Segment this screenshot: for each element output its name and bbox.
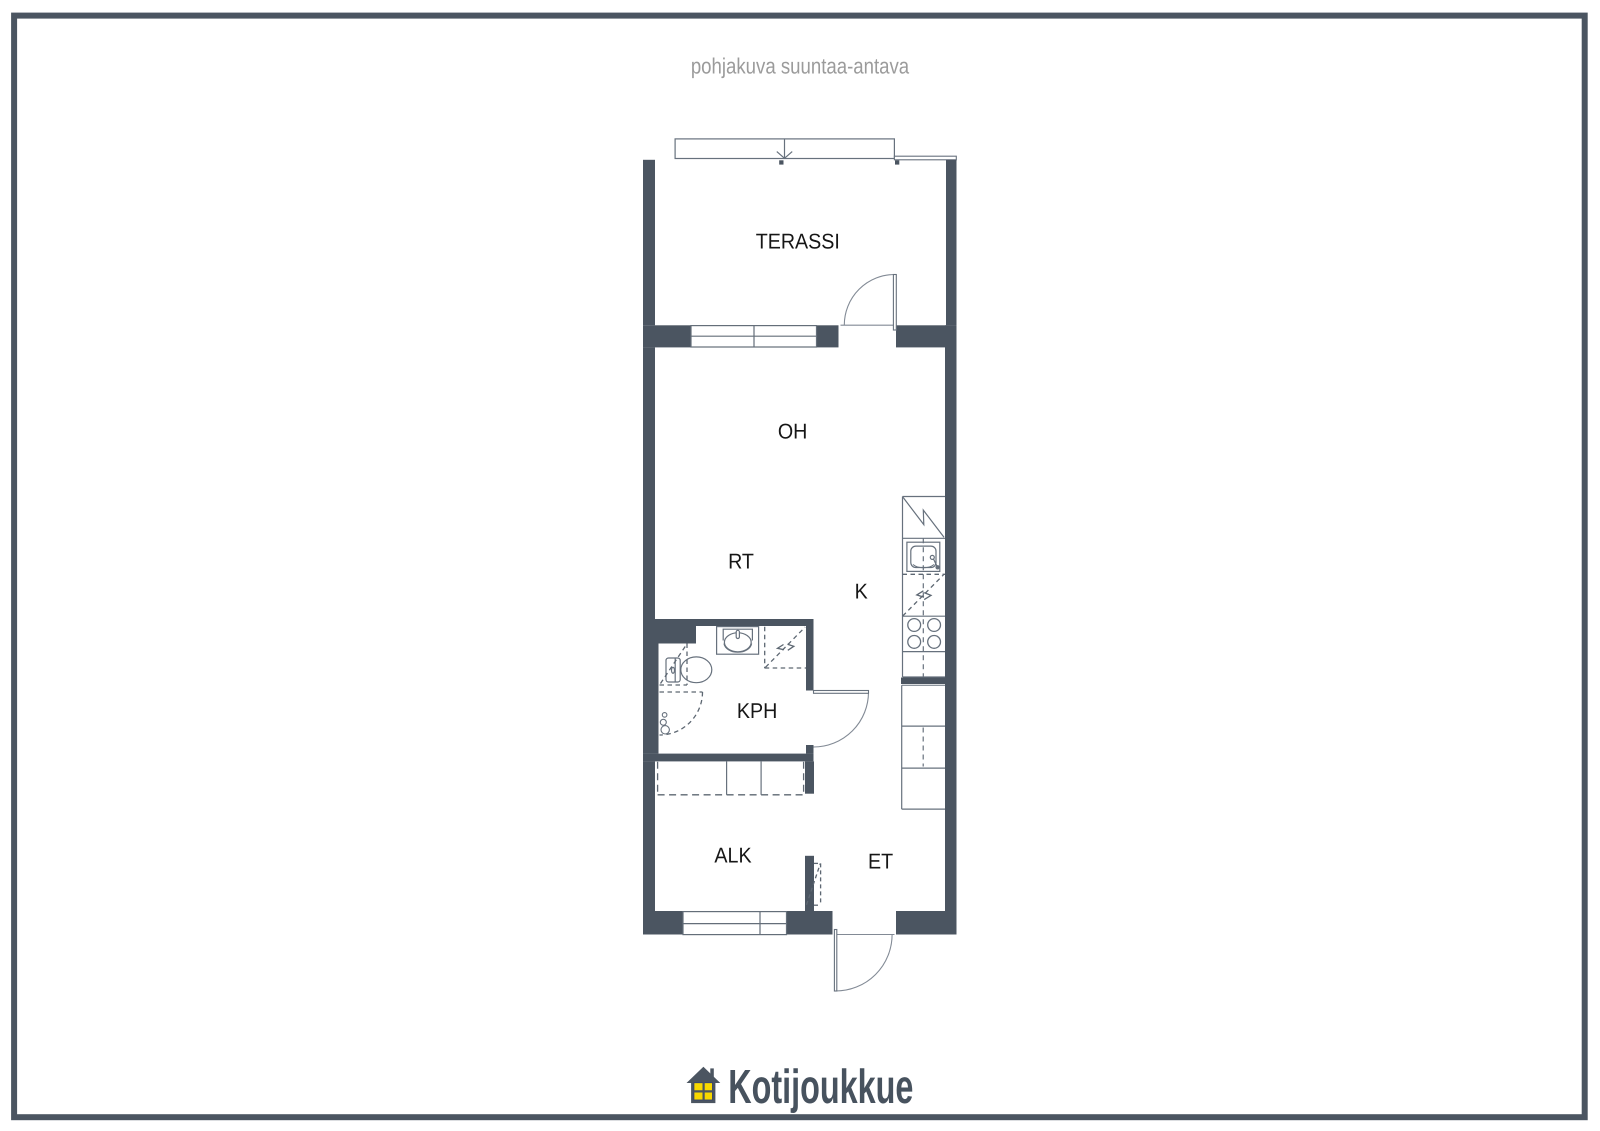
svg-text:OH: OH bbox=[778, 420, 808, 444]
svg-text:ALK: ALK bbox=[714, 844, 752, 868]
svg-text:Kotijoukkue: Kotijoukkue bbox=[728, 1061, 913, 1114]
svg-text:TERASSI: TERASSI bbox=[756, 230, 840, 254]
svg-text:ET: ET bbox=[868, 850, 893, 874]
svg-text:pohjakuva suuntaa-antava: pohjakuva suuntaa-antava bbox=[691, 54, 910, 79]
svg-text:RT: RT bbox=[728, 549, 754, 573]
svg-text:K: K bbox=[855, 580, 869, 604]
svg-text:KPH: KPH bbox=[737, 699, 777, 723]
